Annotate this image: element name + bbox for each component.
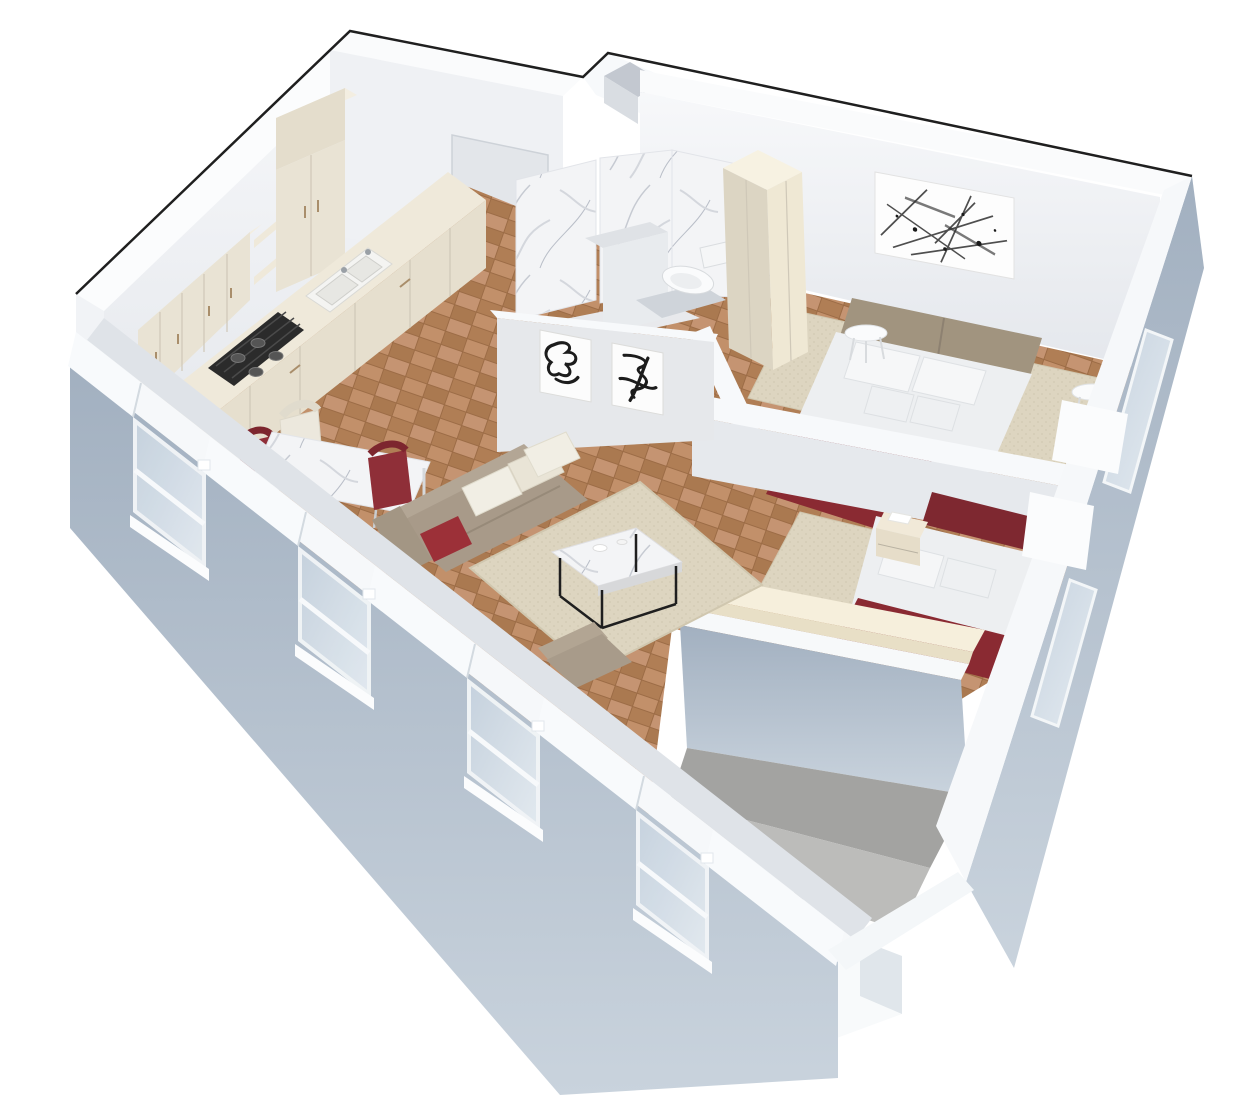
red-chair-right-body — [368, 450, 412, 510]
coffee-table-cup-1 — [593, 545, 607, 552]
wardrobe-front — [767, 172, 808, 370]
sink-faucet-2 — [365, 249, 371, 255]
floorplan-3d-render — [0, 0, 1252, 1095]
east-window-2-sill-block — [1022, 492, 1094, 570]
hallway-artwork-wall — [490, 310, 718, 452]
framed-calligraphy-art-1 — [540, 330, 591, 402]
framed-calligraphy-art-2 — [612, 343, 663, 415]
vanity-front — [603, 232, 668, 334]
floorplan-stage — [0, 0, 1252, 1095]
marble-wall-left — [516, 160, 596, 320]
cream-wardrobe — [723, 150, 808, 370]
sink-faucet-1 — [341, 267, 347, 273]
coffee-table-cup-2 — [617, 540, 627, 545]
